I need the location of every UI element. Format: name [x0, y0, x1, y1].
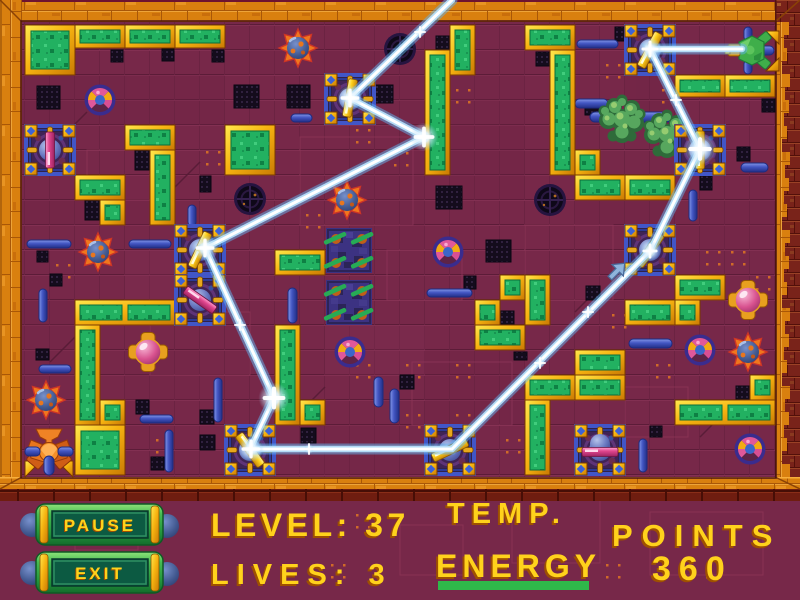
svg-text:EXIT: EXIT — [75, 564, 125, 583]
svg-text:360: 360 — [652, 550, 733, 588]
svg-text:TEMP.: TEMP. — [447, 498, 567, 530]
svg-text:ENERGY: ENERGY — [436, 548, 601, 584]
svg-text:PAUSE: PAUSE — [64, 516, 136, 535]
svg-text:LIVES: 3: LIVES: 3 — [211, 559, 393, 591]
svg-text:POINTS: POINTS — [612, 518, 781, 553]
svg-text:LEVEL: 37: LEVEL: 37 — [211, 507, 410, 543]
